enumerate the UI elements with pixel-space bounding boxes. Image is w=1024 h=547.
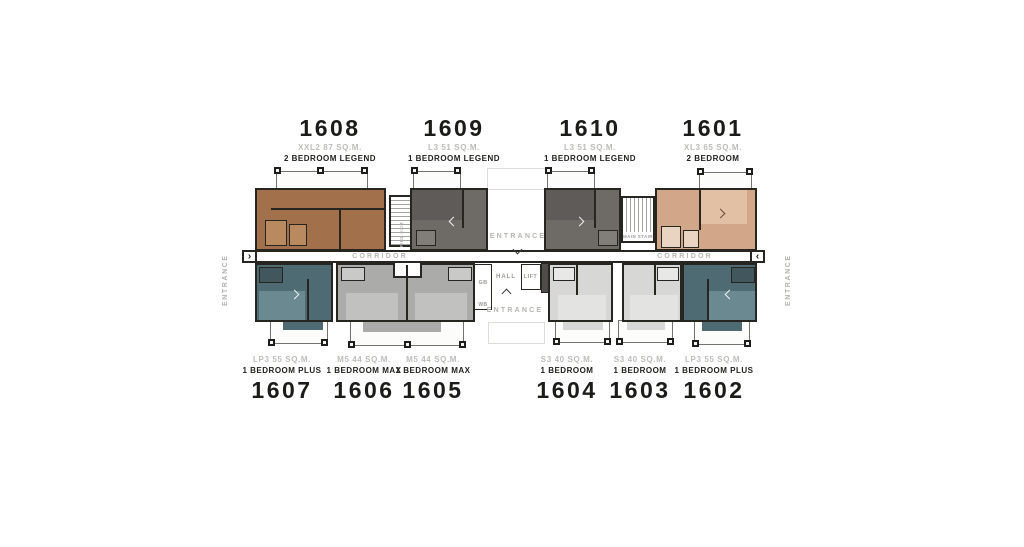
room-box <box>731 267 755 283</box>
column-marker <box>459 341 466 348</box>
wall-line <box>339 210 341 250</box>
column-marker <box>697 168 704 175</box>
column-marker <box>616 338 623 345</box>
unit-type: M5 44 SQ.M. <box>373 356 493 364</box>
floor-plan-canvas: 1608 XXL2 87 SQ.M. 2 BEDROOM LEGEND 1609… <box>0 0 1024 547</box>
chevron-up-icon <box>502 289 512 299</box>
column-marker <box>604 338 611 345</box>
column-marker <box>746 168 753 175</box>
unit-bedroom: 1 BEDROOM MAX <box>373 367 493 375</box>
column-marker <box>404 341 411 348</box>
unit-number: 1605 <box>373 379 493 402</box>
unit-type: XL3 65 SQ.M. <box>653 144 773 152</box>
unit-type: L3 51 SQ.M. <box>530 144 650 152</box>
unit-area-1606-1605[interactable] <box>336 263 475 322</box>
entrance-bottom-label: ENTRANCE <box>480 307 550 314</box>
room-box <box>661 226 681 248</box>
room-shade <box>346 293 398 320</box>
unit-label-1608: 1608 XXL2 87 SQ.M. 2 BEDROOM LEGEND <box>265 117 395 163</box>
main-stair: MAIN STAIR <box>621 196 655 243</box>
unit-area-1610[interactable] <box>544 188 621 251</box>
unit-area-1608[interactable] <box>255 188 386 251</box>
entrance-canopy-outline <box>487 168 549 190</box>
column-marker <box>268 339 275 346</box>
unit-number: 1602 <box>654 379 774 402</box>
room-box <box>553 267 575 281</box>
room-shade <box>701 190 747 224</box>
column-marker <box>692 340 699 347</box>
unit-area-1601[interactable] <box>655 188 757 251</box>
balcony <box>699 172 752 189</box>
unit-number: 1608 <box>265 117 395 140</box>
wall-line <box>307 279 309 320</box>
corridor-left-label: CORRIDOR <box>305 253 455 260</box>
unit-area-1609[interactable] <box>410 188 488 251</box>
wall-line <box>654 265 656 295</box>
room-box <box>448 267 472 281</box>
column-marker <box>744 340 751 347</box>
unit-label-1605: M5 44 SQ.M. 1 BEDROOM MAX 1605 <box>373 352 493 402</box>
column-marker <box>317 167 324 174</box>
corridor-arrow-left-icon: › <box>242 250 257 263</box>
room-box <box>598 230 618 246</box>
wall-line <box>271 208 384 210</box>
column-marker <box>274 167 281 174</box>
main-stair-label: MAIN STAIR <box>623 234 653 239</box>
room-shade <box>630 295 678 320</box>
room-box <box>657 267 679 281</box>
fire-exit-label: FIRE EXIT <box>399 201 409 247</box>
unit-type: L3 51 SQ.M. <box>394 144 514 152</box>
wall-line <box>707 279 709 320</box>
room-box <box>289 224 307 246</box>
unit-bedroom: 2 BEDROOM <box>653 155 773 163</box>
column-marker <box>321 339 328 346</box>
room-box <box>265 220 287 246</box>
wall-line <box>699 190 701 230</box>
wall-line <box>594 190 596 228</box>
hall-label: HALL <box>490 274 522 280</box>
room-shade <box>412 190 462 220</box>
column-marker <box>667 338 674 345</box>
unit-bedroom: 1 BEDROOM LEGEND <box>394 155 514 163</box>
column-marker <box>545 167 552 174</box>
column-marker <box>588 167 595 174</box>
lift-label: LIFT <box>522 274 539 280</box>
lift: LIFT <box>521 264 541 290</box>
room-box <box>416 230 436 246</box>
room-box <box>259 267 283 283</box>
column-marker <box>553 338 560 345</box>
unit-label-1602: LP3 55 SQ.M. 1 BEDROOM PLUS 1602 <box>654 352 774 402</box>
column-marker <box>411 167 418 174</box>
column-marker <box>361 167 368 174</box>
wall-line <box>406 265 408 320</box>
unit-bedroom: 1 BEDROOM PLUS <box>654 367 774 375</box>
column-marker <box>348 341 355 348</box>
unit-type: LP3 55 SQ.M. <box>654 356 774 364</box>
corridor-right-label: CORRIDOR <box>610 253 760 260</box>
room-shade <box>415 293 467 320</box>
unit-number: 1610 <box>530 117 650 140</box>
entrance-left-label: ENTRANCE <box>222 236 232 306</box>
unit-label-1610: 1610 L3 51 SQ.M. 1 BEDROOM LEGEND <box>530 117 650 163</box>
wall-line <box>576 265 578 295</box>
unit-number: 1609 <box>394 117 514 140</box>
unit-area-1602[interactable] <box>682 263 757 322</box>
room-box <box>341 267 365 281</box>
unit-area-1603[interactable] <box>622 263 682 322</box>
wall-line <box>462 190 464 228</box>
room-box <box>683 230 699 248</box>
unit-label-1609: 1609 L3 51 SQ.M. 1 BEDROOM LEGEND <box>394 117 514 163</box>
column-marker <box>454 167 461 174</box>
unit-bedroom: 2 BEDROOM LEGEND <box>265 155 395 163</box>
entrance-canopy-outline <box>488 322 545 344</box>
entrance-right-label: ENTRANCE <box>785 236 795 306</box>
unit-label-1601: 1601 XL3 65 SQ.M. 2 BEDROOM <box>653 117 773 163</box>
room-shade <box>558 295 606 320</box>
entrance-top-label: ENTRANCE <box>483 233 553 240</box>
gb-label: GB <box>474 280 492 286</box>
unit-area-1607[interactable] <box>255 263 333 322</box>
unit-number: 1601 <box>653 117 773 140</box>
unit-type: XXL2 87 SQ.M. <box>265 144 395 152</box>
room-shade <box>546 190 594 220</box>
unit-bedroom: 1 BEDROOM LEGEND <box>530 155 650 163</box>
unit-area-1604[interactable] <box>548 263 613 322</box>
